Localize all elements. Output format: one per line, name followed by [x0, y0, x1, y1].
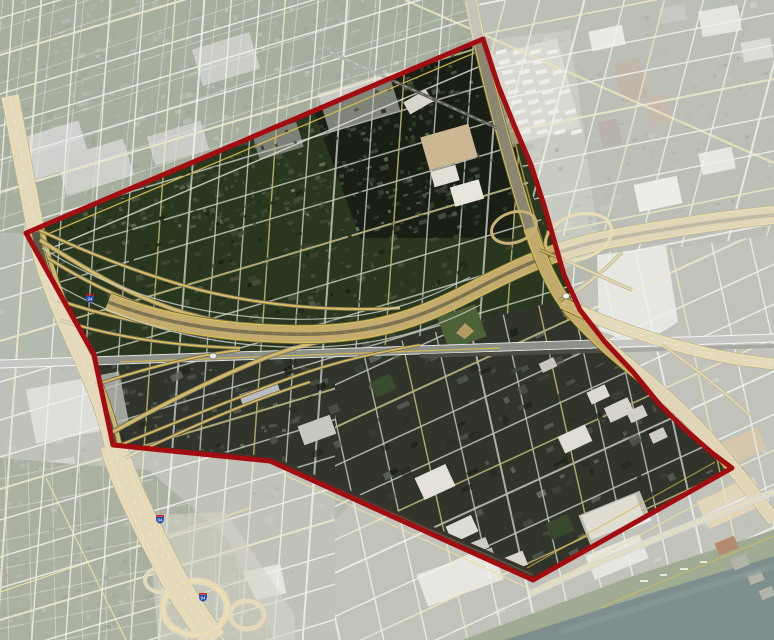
- svg-text:94: 94: [157, 518, 163, 523]
- svg-text:94: 94: [200, 596, 206, 601]
- svg-text:94: 94: [87, 297, 93, 302]
